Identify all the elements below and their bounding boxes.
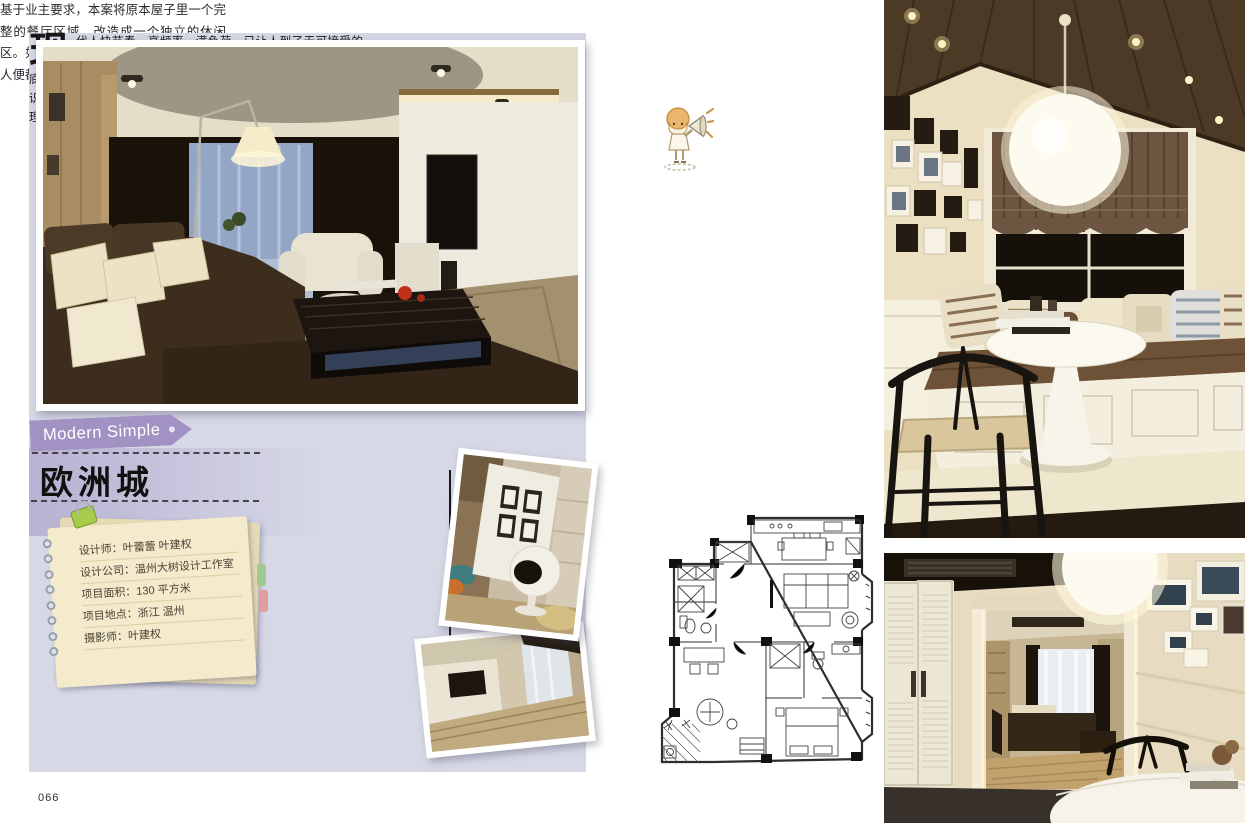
detail-photo-tv-corner xyxy=(414,621,596,758)
living-room-scene xyxy=(43,47,578,404)
floor-plan xyxy=(654,512,878,774)
living-room-photo xyxy=(36,40,585,411)
book-spread: Modern Simple 欧洲城 设计师：叶蕾蕾 叶建权 设计公司：温州大树设… xyxy=(0,0,1245,823)
page-number: 066 xyxy=(38,792,59,804)
notepad-tab-pink xyxy=(259,590,268,612)
ball-chair-scene xyxy=(445,454,592,635)
notepad-tab-green xyxy=(257,564,266,586)
style-tag: Modern Simple xyxy=(29,413,192,451)
leisure-room-scene xyxy=(884,553,1245,823)
megaphone-girl-icon xyxy=(658,106,714,172)
leisure-room-photo xyxy=(884,553,1245,823)
notepad-sheet: 设计师：叶蕾蕾 叶建权 设计公司：温州大树设计工作室 项目面积：130 平方米 … xyxy=(47,516,256,688)
style-tag-label: Modern Simple xyxy=(30,421,161,446)
floor-plan-drawing xyxy=(654,512,878,774)
tv-corner-scene xyxy=(421,628,589,752)
left-page-panel: Modern Simple 欧洲城 设计师：叶蕾蕾 叶建权 设计公司：温州大树设… xyxy=(29,33,586,772)
megaphone-girl-art xyxy=(658,106,714,172)
dining-nook-photo xyxy=(884,0,1245,538)
project-title: 欧洲城 xyxy=(40,456,154,504)
info-notepad: 设计师：叶蕾蕾 叶建权 设计公司：温州大树设计工作室 项目面积：130 平方米 … xyxy=(48,518,262,688)
detail-photo-ball-chair xyxy=(438,448,598,642)
dining-nook-scene xyxy=(884,0,1245,538)
tag-dot xyxy=(169,426,175,432)
dashed-rule-top xyxy=(32,452,260,454)
